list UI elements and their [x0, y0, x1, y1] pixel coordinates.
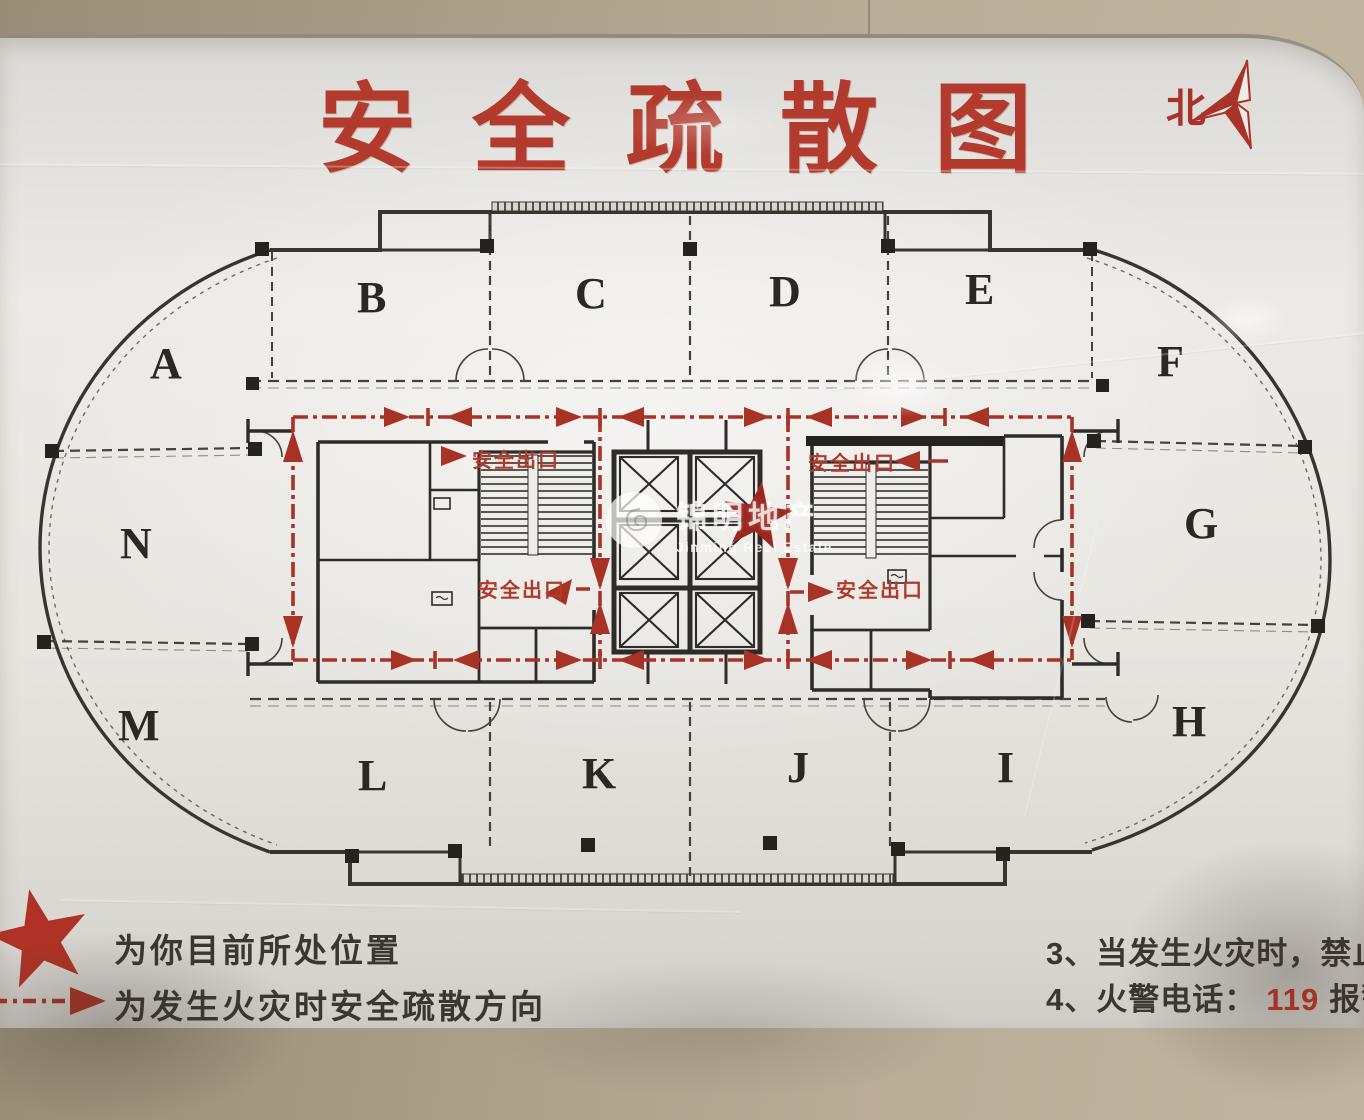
- note-3-number: 3、: [1046, 936, 1096, 971]
- zone-label-K: K: [582, 748, 616, 799]
- glare-spot: [620, 95, 790, 155]
- core-left-block: [318, 442, 594, 682]
- photo-shadow: [480, 960, 960, 1100]
- zone-label-N: N: [120, 518, 152, 569]
- zone-label-E: E: [965, 264, 994, 315]
- zone-label-A: A: [150, 338, 182, 389]
- glare-spot: [1205, 295, 1291, 345]
- zone-label-B: B: [357, 272, 386, 323]
- zone-label-L: L: [358, 750, 387, 801]
- north-label: 北: [1166, 76, 1206, 134]
- zone-label-F: F: [1157, 336, 1184, 387]
- zone-label-D: D: [769, 266, 801, 317]
- zone-label-C: C: [575, 268, 607, 319]
- exit-label-southeast: 安全出口: [836, 574, 924, 603]
- zone-label-M: M: [118, 700, 160, 751]
- watermark: 锦明地产 Jinming Real Estate: [606, 492, 833, 555]
- watermark-name-cn: 锦明地产: [676, 492, 833, 537]
- zone-label-H: H: [1172, 696, 1206, 747]
- watermark-logo-icon: [606, 492, 662, 548]
- exit-label-northwest: 安全出口: [472, 444, 560, 473]
- exit-label-southwest: 安全出口: [478, 574, 566, 603]
- exit-label-northeast: 安全出口: [808, 447, 896, 476]
- watermark-name-en: Jinming Real Estate: [676, 540, 833, 555]
- glare-spot: [840, 355, 956, 417]
- zone-label-I: I: [997, 742, 1014, 793]
- note-4-number: 4、: [1046, 982, 1096, 1017]
- zone-label-J: J: [787, 742, 809, 793]
- zone-label-G: G: [1184, 498, 1218, 549]
